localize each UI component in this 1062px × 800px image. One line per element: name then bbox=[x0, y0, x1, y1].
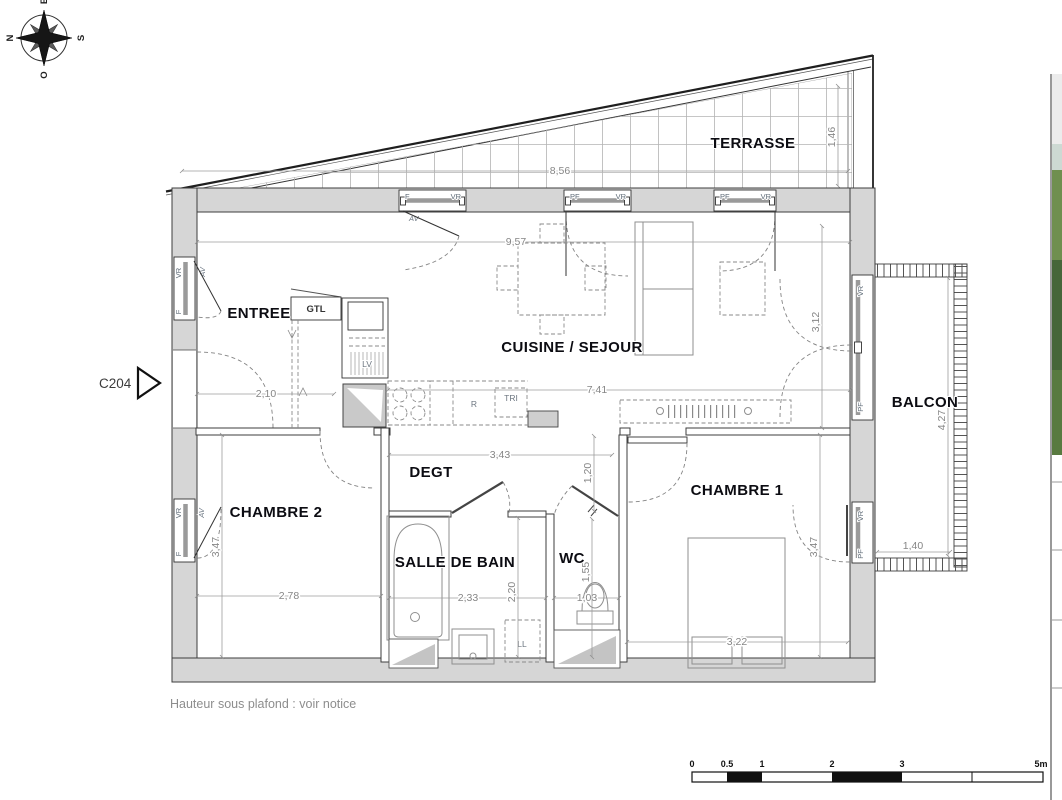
compass-s: S bbox=[76, 35, 87, 41]
dim-chambre1-width: 3,22 bbox=[727, 636, 748, 648]
dim-chambre1-depth: 3,47 bbox=[808, 537, 820, 558]
window-tag: PF bbox=[570, 192, 580, 201]
floor-plan-canvas: N E S O 8,56 1,46 F VR AV bbox=[0, 0, 1062, 800]
window-top-right: PF VR bbox=[714, 190, 776, 271]
window-tag: F bbox=[405, 192, 410, 201]
page-edge-photo-strip bbox=[1051, 74, 1062, 800]
terrace-area: 8,56 1,46 bbox=[166, 55, 873, 203]
window-tag: VR bbox=[174, 267, 183, 278]
ceiling-height-note: Hauteur sous plafond : voir notice bbox=[170, 697, 356, 711]
window-tag: F bbox=[174, 551, 183, 556]
window-tag: VR bbox=[856, 510, 865, 521]
dim-sdb-depth: 2,20 bbox=[506, 582, 518, 603]
dim-sejour-top: 9,57 bbox=[506, 236, 527, 248]
bed bbox=[688, 538, 785, 668]
wardrobe bbox=[620, 400, 791, 423]
kitchen-fixtures: GTL LV R TRI bbox=[288, 289, 528, 428]
room-label-cuisine-sejour: CUISINE / SEJOUR bbox=[501, 339, 642, 356]
window-tag: VR bbox=[856, 285, 865, 296]
scale-label: 1 bbox=[759, 759, 764, 769]
window-chambre1: VR PF bbox=[793, 502, 873, 563]
dim-degt-width: 3,43 bbox=[490, 449, 511, 461]
furniture bbox=[497, 222, 791, 668]
compass-rose-icon: N E S O bbox=[5, 0, 87, 79]
window-tag: VR bbox=[174, 507, 183, 518]
dining-table bbox=[518, 243, 605, 315]
balcony-door: VR PF bbox=[780, 275, 873, 420]
room-label-entree: ENTREE bbox=[227, 305, 290, 322]
window-top-left: F VR AV bbox=[399, 190, 466, 270]
dim-sejour-depth: 3,12 bbox=[810, 312, 822, 333]
room-label-wc: WC bbox=[559, 550, 585, 567]
window-tag: VR bbox=[451, 192, 462, 201]
dim-terrasse-width: 8,56 bbox=[550, 165, 571, 177]
interior-doors bbox=[320, 431, 687, 516]
compass-e: E bbox=[39, 0, 50, 4]
tri-label: TRI bbox=[504, 393, 518, 403]
scale-label: 2 bbox=[829, 759, 834, 769]
room-label-terrasse: TERRASSE bbox=[711, 135, 796, 152]
compass-o: O bbox=[39, 71, 50, 78]
scale-label: 0 bbox=[689, 759, 694, 769]
window-tag: PF bbox=[856, 549, 865, 559]
window-tag: F bbox=[174, 309, 183, 314]
dim-terrasse-depth: 1,46 bbox=[826, 127, 838, 148]
interior-walls bbox=[196, 411, 850, 662]
fridge-label: R bbox=[471, 399, 477, 409]
armchair bbox=[720, 262, 765, 315]
balcony-area: 4,27 1,40 bbox=[875, 264, 967, 571]
window-tag: AV bbox=[197, 507, 206, 519]
dim-balcon-width: 1,40 bbox=[903, 540, 924, 552]
scale-label: 0.5 bbox=[721, 759, 734, 769]
room-label-chambre1: CHAMBRE 1 bbox=[691, 482, 784, 499]
gtl-label: GTL bbox=[307, 304, 326, 315]
dim-chambre2-depth: 3,47 bbox=[210, 537, 222, 558]
dim-sejour-width: 7,41 bbox=[587, 384, 608, 396]
window-tag: VR bbox=[761, 192, 772, 201]
dishwasher-label: LV bbox=[362, 359, 372, 369]
window-tag: VR bbox=[616, 192, 627, 201]
dim-chambre2-width: 2,78 bbox=[279, 590, 300, 602]
room-label-degt: DEGT bbox=[409, 464, 452, 481]
dim-degt-depth: 1,20 bbox=[582, 463, 594, 484]
dim-entree-width: 2,10 bbox=[256, 388, 277, 400]
bathtub bbox=[387, 516, 449, 640]
scale-label: 5m bbox=[1034, 759, 1047, 769]
toilet bbox=[577, 611, 613, 624]
floor-plan-page: N E S O 8,56 1,46 F VR AV bbox=[0, 0, 1062, 800]
scale-bar: 0 0.5 1 2 3 5m bbox=[689, 759, 1047, 782]
dimensions: 9,57 2,10 7,41 3,12 3,43 1,20 3,47 2,78 … bbox=[197, 226, 850, 657]
unit-marker: C204 bbox=[99, 368, 160, 398]
room-label-chambre2: CHAMBRE 2 bbox=[230, 504, 323, 521]
dim-balcon-depth: 4,27 bbox=[936, 410, 948, 431]
scale-label: 3 bbox=[899, 759, 904, 769]
room-label-balcon: BALCON bbox=[892, 394, 959, 411]
window-tag: PF bbox=[720, 192, 730, 201]
unit-code: C204 bbox=[99, 376, 132, 391]
entry-arrow-icon bbox=[138, 368, 160, 398]
dim-wc-width: 1,03 bbox=[577, 592, 598, 604]
window-top-middle: PF VR bbox=[564, 190, 631, 276]
window-tag: PF bbox=[856, 402, 865, 412]
washing-machine-label: LL bbox=[517, 639, 527, 649]
compass-n: N bbox=[5, 34, 16, 41]
dim-sdb-width: 2,33 bbox=[458, 592, 479, 604]
room-label-salle-de-bain: SALLE DE BAIN bbox=[395, 554, 515, 571]
